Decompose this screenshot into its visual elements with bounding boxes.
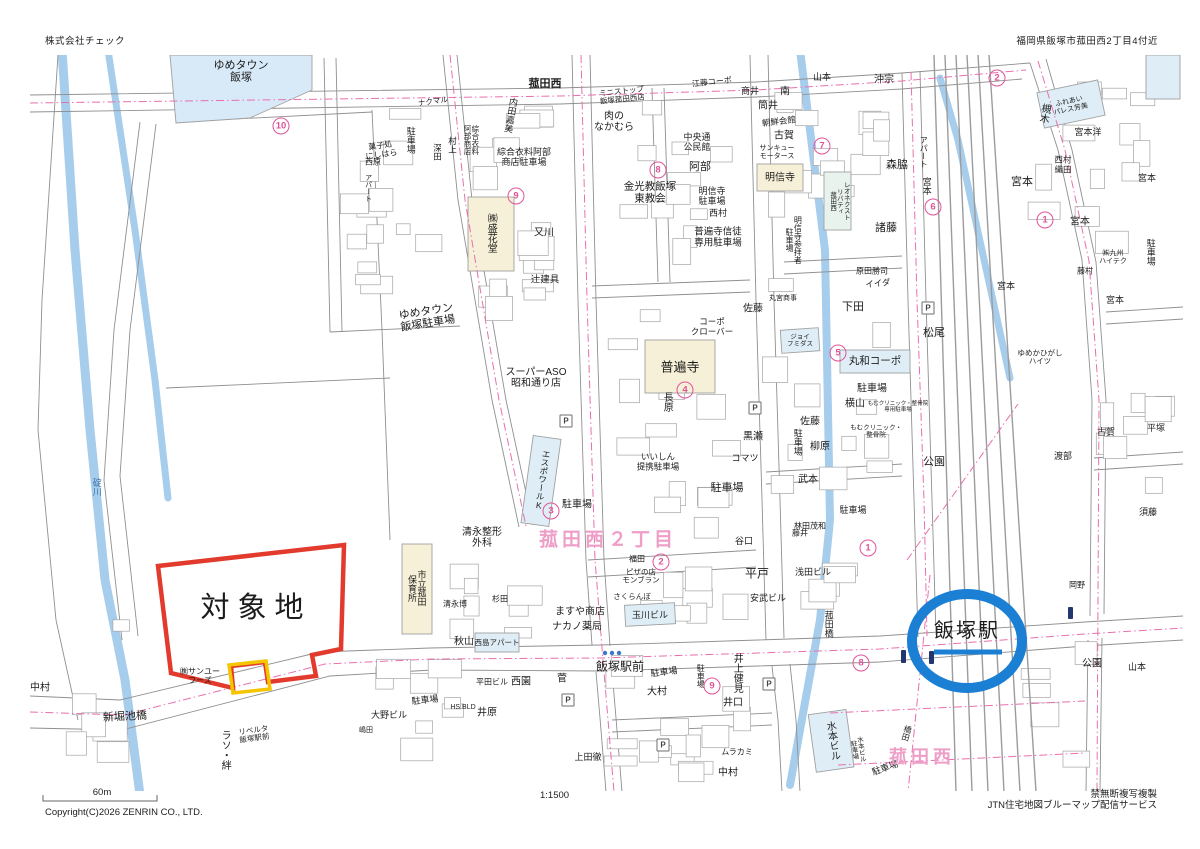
nursery-building (402, 544, 432, 634)
espoir-building (521, 435, 561, 526)
leonext-building (824, 172, 851, 230)
meishinji-temple-building (757, 164, 803, 191)
service-name: JTN住宅地図ブルーマップ配信サービス (988, 797, 1157, 811)
yumetown-building (170, 55, 312, 123)
map-canvas[interactable]: ゆめタウン飯塚菰田西ゆめタウン飯塚駐車場碇川㈱サンユーフーズ新堀池橋中村ラソ・絆… (0, 0, 1200, 849)
map-graphics (0, 0, 1200, 849)
maruwa-corpo-building (840, 350, 910, 373)
bus-stop-dots (603, 651, 621, 655)
target-site-outline (158, 545, 344, 688)
scale-ratio: 1:1500 (540, 790, 569, 801)
joy-building (780, 328, 820, 354)
copyright: Copyright(C)2026 ZENRIN CO., LTD. (45, 807, 203, 818)
corner-building (1146, 55, 1180, 99)
tamagawa-building (625, 603, 676, 627)
mizumoto-building (808, 709, 854, 772)
fureai-building (1037, 80, 1105, 128)
scale-label: 60m (62, 787, 142, 798)
nishijima-apart-building (475, 633, 519, 652)
fuhenji-temple-building (645, 340, 715, 393)
